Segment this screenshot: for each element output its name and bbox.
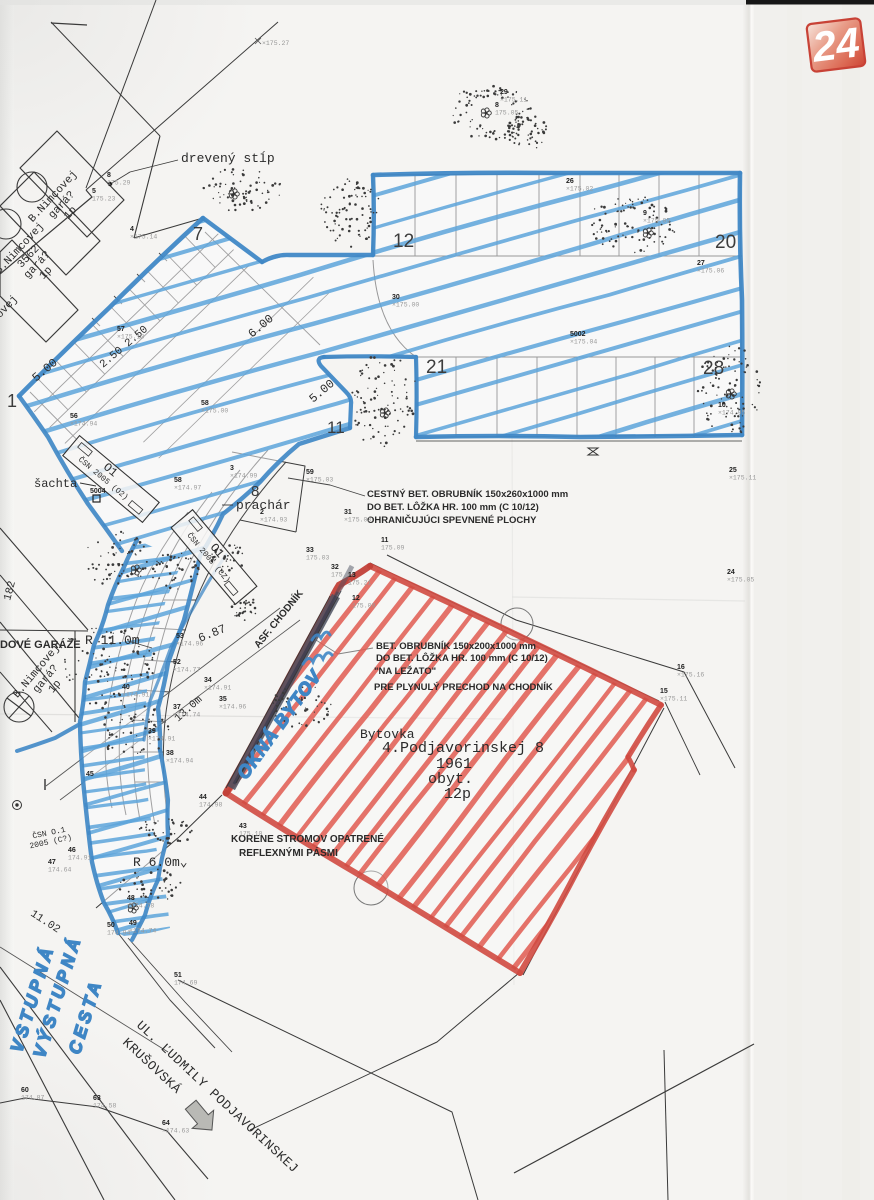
svg-text:PRE PLYNULÝ PRECHOD NA CHODNÍK: PRE PLYNULÝ PRECHOD NA CHODNÍK <box>374 681 553 693</box>
svg-text:53: 53 <box>176 633 184 640</box>
svg-text:175.23: 175.23 <box>92 196 116 203</box>
svg-text:45: 45 <box>86 771 94 778</box>
svg-text:34: 34 <box>204 677 212 684</box>
svg-text:25: 25 <box>729 467 737 474</box>
svg-text:2: 2 <box>260 509 264 516</box>
svg-text:175.09: 175.09 <box>352 603 376 610</box>
svg-text:26: 26 <box>566 178 574 185</box>
svg-text:174.98: 174.98 <box>199 802 223 809</box>
svg-text:48: 48 <box>127 895 135 902</box>
svg-text:7: 7 <box>193 224 203 244</box>
svg-text:5002: 5002 <box>570 331 586 338</box>
svg-text:174.64: 174.64 <box>48 867 72 874</box>
svg-text:×174.91: ×174.91 <box>204 685 231 692</box>
svg-text:×174.91: ×174.91 <box>122 692 149 699</box>
svg-text:47: 47 <box>48 859 56 866</box>
svg-text:×175.05: ×175.05 <box>643 218 670 225</box>
svg-text:175.09: 175.09 <box>381 545 405 552</box>
svg-text:58: 58 <box>201 400 209 407</box>
svg-text:×174.94: ×174.94 <box>166 758 193 765</box>
svg-text:×175.03: ×175.03 <box>344 517 371 524</box>
svg-text:13: 13 <box>348 572 356 579</box>
svg-text:11: 11 <box>327 418 345 437</box>
svg-text:×175.11: ×175.11 <box>500 97 527 104</box>
svg-text:58: 58 <box>174 477 182 484</box>
svg-text:R 11.0m: R 11.0m <box>85 633 140 648</box>
svg-text:175.29: 175.29 <box>107 180 131 187</box>
svg-text:×174.63: ×174.63 <box>162 1128 189 1135</box>
svg-text:4.Podjavorinskej 8: 4.Podjavorinskej 8 <box>382 740 544 757</box>
svg-text:×175.11: ×175.11 <box>660 696 687 703</box>
svg-text:30: 30 <box>392 294 400 301</box>
svg-text:21: 21 <box>426 357 447 378</box>
svg-text:12p: 12p <box>444 786 471 803</box>
svg-text:37: 37 <box>173 704 181 711</box>
svg-text:×175.04: ×175.04 <box>570 339 597 346</box>
svg-text:×174.95: ×174.95 <box>718 410 745 417</box>
svg-text:38: 38 <box>166 750 174 757</box>
svg-text:DO BET. LÔŽKA HR. 100 mm (C 10: DO BET. LÔŽKA HR. 100 mm (C 10/12) <box>367 501 539 513</box>
svg-text:šachta: šachta <box>34 477 77 491</box>
svg-text:8: 8 <box>251 483 259 500</box>
svg-text:12: 12 <box>352 595 360 602</box>
svg-text:×174.97: ×174.97 <box>174 485 201 492</box>
svg-text:9: 9 <box>643 210 647 217</box>
svg-text:R 6.0m⌄: R 6.0m⌄ <box>133 855 188 870</box>
svg-text:4: 4 <box>130 226 134 233</box>
svg-text:×175.13: ×175.13 <box>117 334 144 341</box>
svg-text:×174.91: ×174.91 <box>148 736 175 743</box>
svg-text:56: 56 <box>70 413 78 420</box>
svg-text:46: 46 <box>68 847 76 854</box>
svg-text:33: 33 <box>306 547 314 554</box>
svg-text:CESTNÝ BET. OBRUBNÍK 150x260x: CESTNÝ BET. OBRUBNÍK 150x260x1000 mm <box>367 488 568 500</box>
svg-text:35: 35 <box>219 696 227 703</box>
svg-text:175.05: 175.05 <box>495 110 519 117</box>
svg-text:52: 52 <box>173 659 181 666</box>
svg-text:32: 32 <box>331 564 339 571</box>
svg-text:10: 10 <box>718 402 726 409</box>
svg-text:5004: 5004 <box>90 488 106 495</box>
svg-text:20: 20 <box>715 232 736 253</box>
svg-text:×174.93: ×174.93 <box>260 517 287 524</box>
svg-text:174.94: 174.94 <box>107 930 131 937</box>
svg-text:"NA LEŽATO": "NA LEŽATO" <box>374 665 436 677</box>
svg-text:39: 39 <box>148 728 156 735</box>
svg-text:×174.74: ×174.74 <box>129 928 156 935</box>
svg-text:174.91: 174.91 <box>68 855 92 862</box>
svg-text:BET. OBRUBNÍK 150x200x1000 mm: BET. OBRUBNÍK 150x200x1000 mm <box>376 641 536 652</box>
svg-text:64: 64 <box>162 1120 170 1127</box>
svg-text:27: 27 <box>697 260 705 267</box>
svg-text:×174.94: ×174.94 <box>70 421 97 428</box>
svg-text:24: 24 <box>727 569 735 576</box>
svg-text:5: 5 <box>92 188 96 195</box>
svg-text:60: 60 <box>21 1087 29 1094</box>
svg-text:63: 63 <box>93 1095 101 1102</box>
svg-text:43: 43 <box>239 823 247 830</box>
svg-text:174.58: 174.58 <box>93 1103 117 1110</box>
svg-text:51: 51 <box>174 972 182 979</box>
svg-text:3: 3 <box>230 465 234 472</box>
svg-text:×174.74: ×174.74 <box>173 712 200 719</box>
svg-text:8: 8 <box>495 102 499 109</box>
svg-text:×175.03: ×175.03 <box>306 477 333 484</box>
svg-text:REFLEXNÝMI PÁSMI: REFLEXNÝMI PÁSMI <box>239 846 338 859</box>
svg-text:×174.99: ×174.99 <box>230 473 257 480</box>
svg-text:×175.05: ×175.05 <box>727 577 754 584</box>
svg-text:drevený stĺp: drevený stĺp <box>181 151 275 166</box>
svg-text:×175.02: ×175.02 <box>566 186 593 193</box>
svg-text:OHRANIČUJÚCI SPEVNENÉ PLOCHY: OHRANIČUJÚCI SPEVNENÉ PLOCHY <box>367 514 537 526</box>
svg-text:×175.27: ×175.27 <box>262 40 289 47</box>
svg-text:×174.77: ×174.77 <box>173 667 200 674</box>
svg-text:175.03: 175.03 <box>306 555 330 562</box>
svg-text:24: 24 <box>809 18 862 70</box>
svg-text:57: 57 <box>117 326 125 333</box>
svg-text:15: 15 <box>660 688 668 695</box>
svg-text:16: 16 <box>677 664 685 671</box>
svg-text:12: 12 <box>393 231 414 252</box>
svg-text:×175.00: ×175.00 <box>392 302 419 309</box>
svg-text:175.21: 175.21 <box>348 580 372 587</box>
svg-text:×174.96: ×174.96 <box>219 704 246 711</box>
svg-text:59: 59 <box>306 469 314 476</box>
svg-text:31: 31 <box>344 509 352 516</box>
svg-text:11: 11 <box>381 537 389 544</box>
svg-text:174.69: 174.69 <box>174 980 198 987</box>
svg-text:175.10: 175.10 <box>239 831 263 838</box>
svg-text:×175.06: ×175.06 <box>697 268 724 275</box>
svg-text:40: 40 <box>122 684 130 691</box>
svg-text:50: 50 <box>107 922 115 929</box>
svg-text:×175.16: ×175.16 <box>677 672 704 679</box>
svg-text:174.87: 174.87 <box>21 1095 45 1102</box>
svg-text:×175.14: ×175.14 <box>130 234 157 241</box>
svg-text:×175.00: ×175.00 <box>201 408 228 415</box>
svg-text:DO BET. LÔŽKA HR. 100 mm (C 10: DO BET. LÔŽKA HR. 100 mm (C 10/12) <box>376 652 548 664</box>
svg-text:49: 49 <box>129 920 137 927</box>
svg-text:×174.78: ×174.78 <box>127 903 154 910</box>
svg-text:×175.11: ×175.11 <box>729 475 756 482</box>
svg-text:1: 1 <box>7 391 17 411</box>
svg-text:44: 44 <box>199 794 207 801</box>
svg-text:ADOVÉ GARÁŽE: ADOVÉ GARÁŽE <box>0 638 81 651</box>
svg-text:×174.96: ×174.96 <box>176 641 203 648</box>
svg-text:29: 29 <box>500 89 508 96</box>
svg-text:28: 28 <box>703 358 724 379</box>
svg-text:8: 8 <box>107 172 111 179</box>
